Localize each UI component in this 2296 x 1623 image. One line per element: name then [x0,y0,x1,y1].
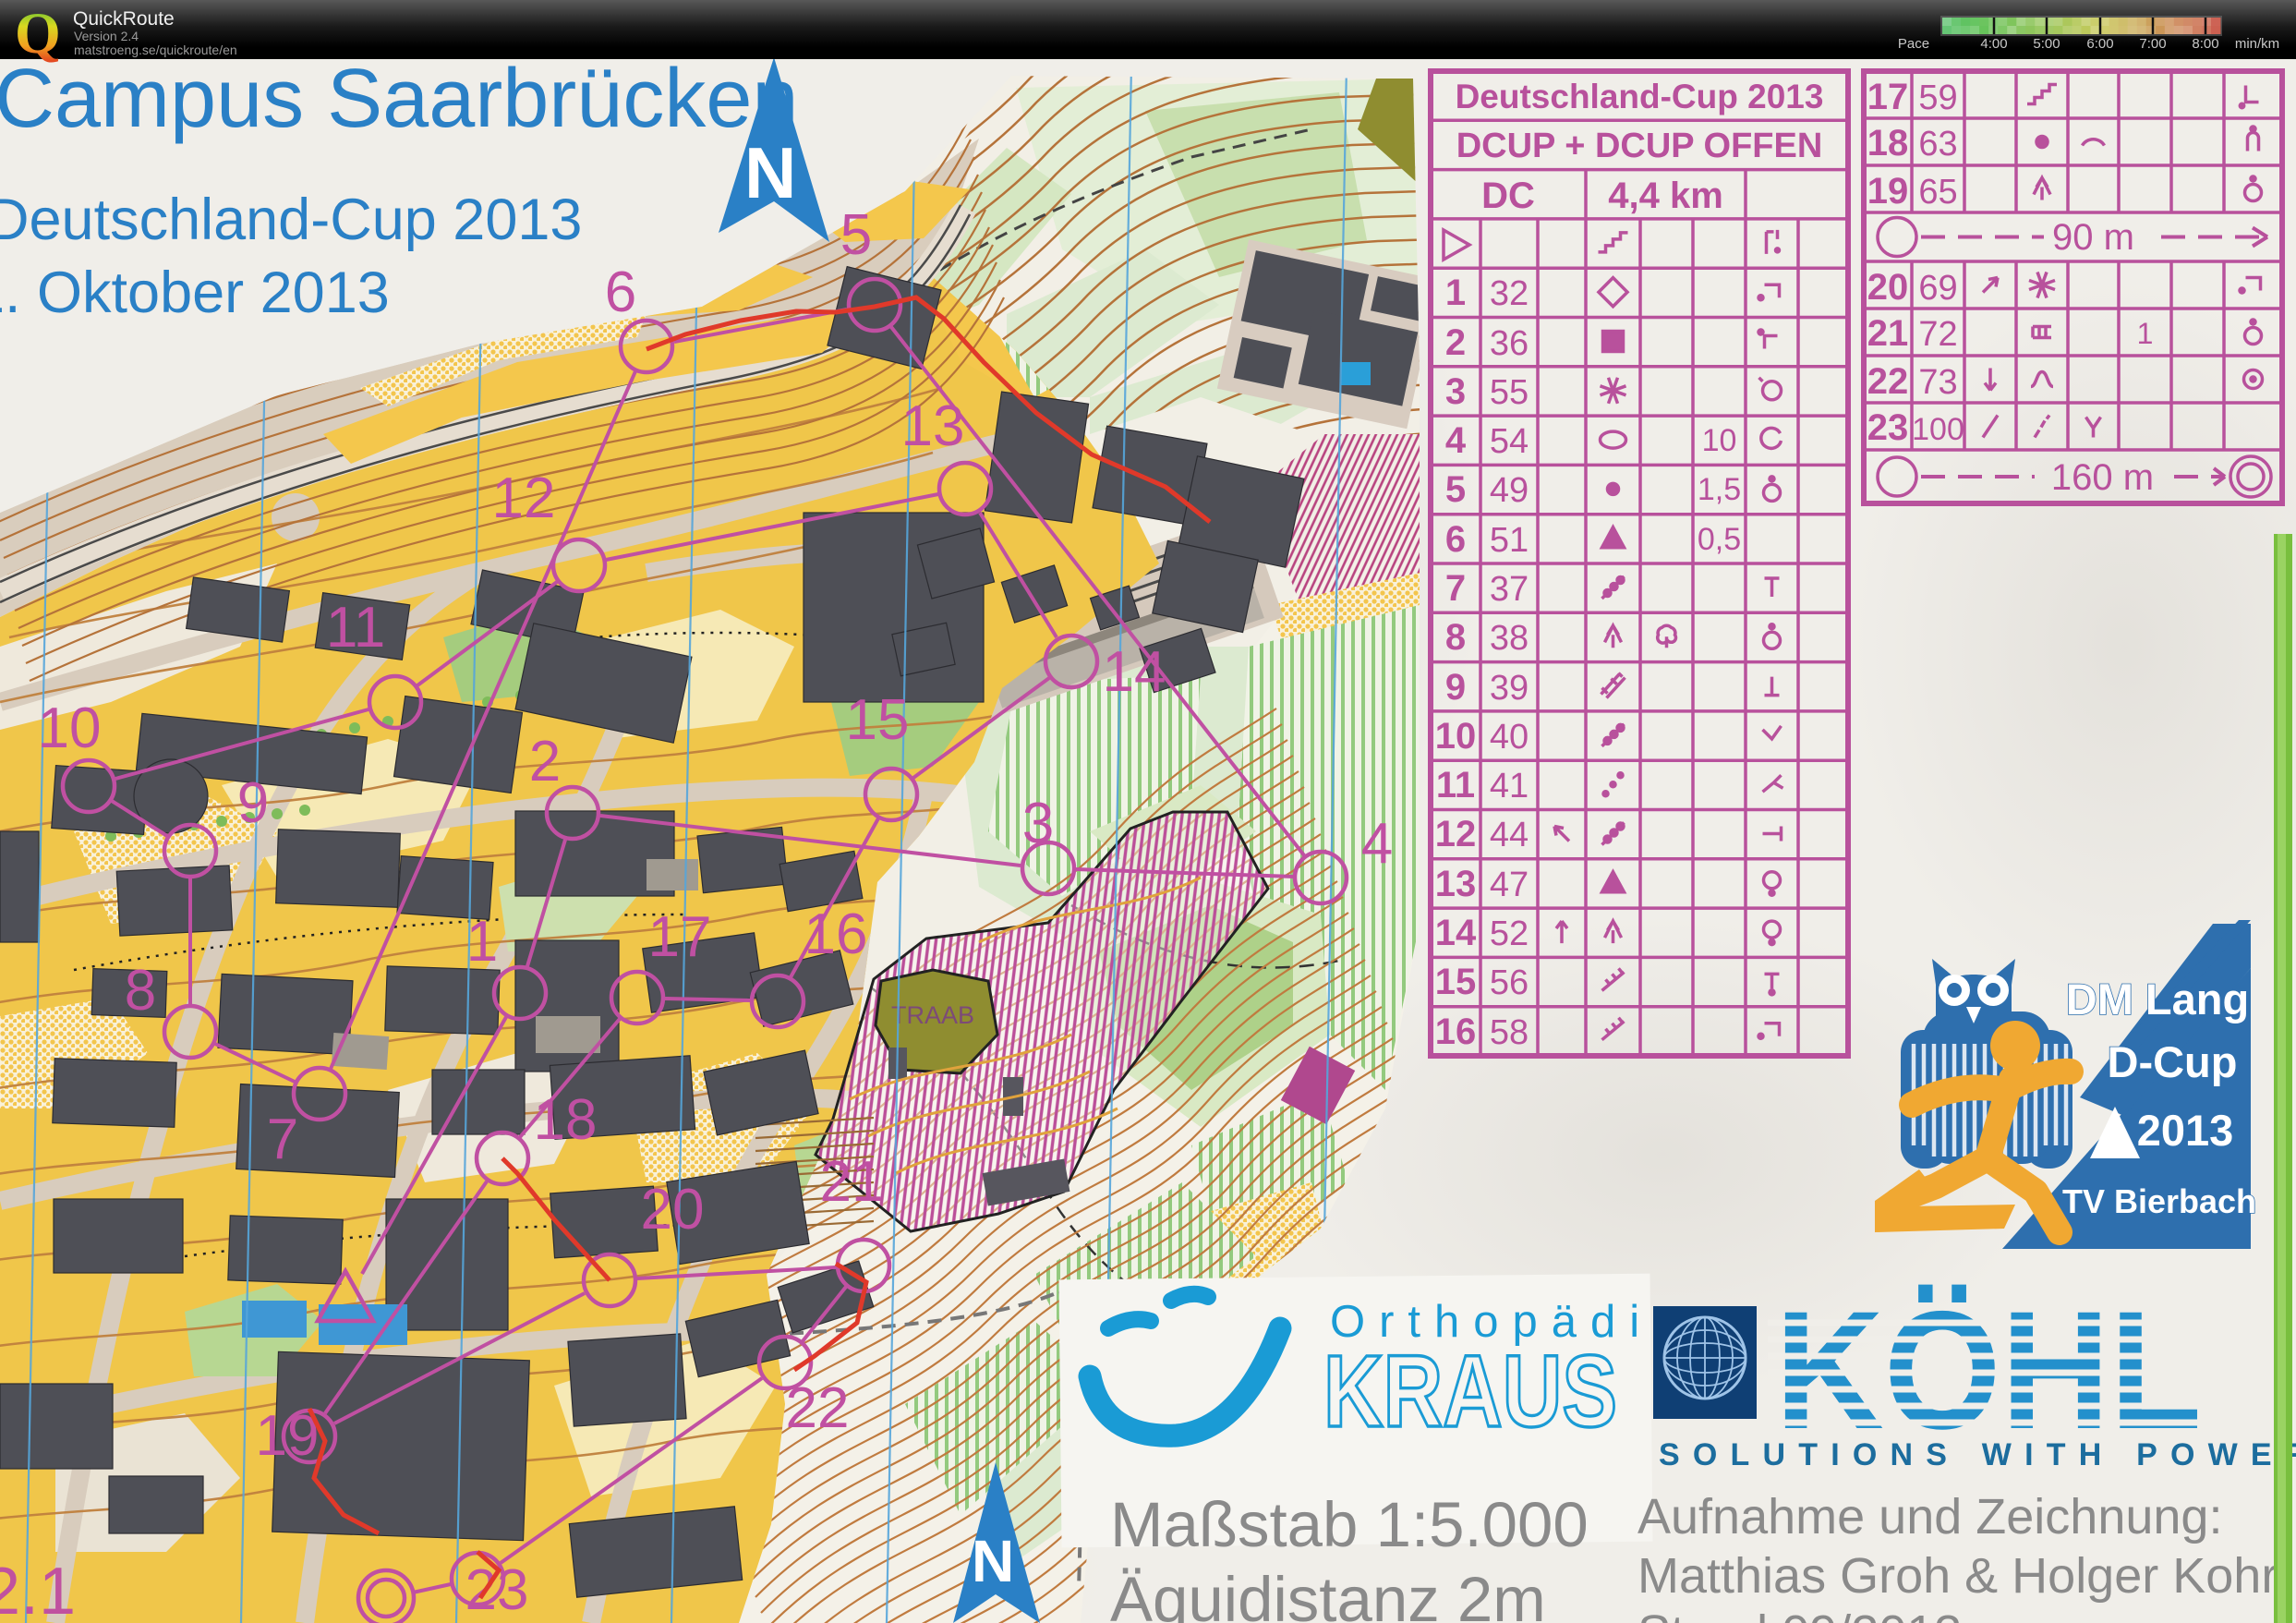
svg-text:17: 17 [648,905,712,969]
svg-text:37: 37 [1490,570,1529,609]
svg-text:12: 12 [492,466,556,530]
svg-text:5: 5 [1445,469,1466,510]
svg-text:N: N [744,132,796,213]
svg-text:6: 6 [605,260,636,324]
svg-text:KRAUS: KRAUS [1323,1335,1617,1448]
svg-text:3: 3 [1022,792,1054,855]
svg-text:39: 39 [1490,669,1529,708]
svg-text:15: 15 [1435,962,1477,1002]
svg-text:65: 65 [1918,173,1957,212]
svg-text:11: 11 [326,596,385,660]
svg-text:3: 3 [1445,371,1466,412]
svg-text:51: 51 [1490,521,1529,560]
svg-text:100: 100 [1912,412,1964,447]
svg-text:36: 36 [1490,324,1529,363]
svg-text:DC: DC [1481,176,1535,216]
svg-text:Äquidistanz 2m: Äquidistanz 2m [1110,1564,1546,1623]
svg-text:4: 4 [1361,812,1393,876]
svg-text:18: 18 [534,1088,598,1152]
svg-text:19: 19 [1867,171,1909,212]
svg-text:4: 4 [1445,420,1467,461]
svg-text:5:00: 5:00 [2033,36,2060,52]
svg-text:20: 20 [641,1178,705,1241]
svg-text:47: 47 [1490,866,1529,904]
svg-text:0,5: 0,5 [1698,522,1741,557]
svg-text:18: 18 [1867,123,1909,164]
svg-text:DM Lang: DM Lang [2066,975,2249,1023]
svg-text:6:00: 6:00 [2086,36,2113,52]
svg-text:1,5: 1,5 [1698,472,1741,507]
svg-text:14: 14 [1103,640,1166,704]
svg-text:Q: Q [15,0,61,66]
svg-text:58: 58 [1490,1013,1529,1052]
svg-text:Stand 09/2013: Stand 09/2013 [1637,1605,1962,1623]
svg-text:DCUP + DCUP OFFEN: DCUP + DCUP OFFEN [1456,127,1823,165]
svg-text:min/km: min/km [2235,36,2279,52]
svg-text:13: 13 [1435,864,1477,904]
svg-text:55: 55 [1490,373,1529,412]
svg-text:6: 6 [1445,519,1466,560]
svg-text:2013: 2013 [2137,1106,2234,1155]
svg-text:23: 23 [1867,407,1909,448]
svg-text:41: 41 [1490,767,1529,805]
svg-text:Deutschland-Cup 2013: Deutschland-Cup 2013 [0,188,582,252]
svg-text:11: 11 [1436,765,1475,805]
svg-text:1: 1 [466,910,498,974]
svg-text:44: 44 [1490,816,1529,854]
svg-text:22: 22 [786,1376,850,1440]
svg-text:56: 56 [1490,963,1529,1002]
svg-text:13: 13 [901,394,965,458]
svg-text:8: 8 [1445,617,1466,658]
svg-text:9: 9 [237,771,269,835]
svg-text:4,4 km: 4,4 km [1608,176,1723,216]
svg-text:8:00: 8:00 [2192,36,2218,52]
svg-text:Matthias Groh & Holger Kohr: Matthias Groh & Holger Kohr [1637,1548,2278,1604]
svg-text:4:00: 4:00 [1980,36,2007,52]
svg-text:2: 2 [1445,322,1466,363]
svg-text:20: 20 [1867,267,1909,308]
svg-text:14: 14 [1435,913,1477,953]
svg-text:7: 7 [267,1108,298,1171]
svg-text:Maßstab 1:5.000: Maßstab 1:5.000 [1110,1489,1589,1560]
svg-text:7: 7 [1445,568,1466,609]
svg-text:15: 15 [846,688,910,752]
svg-text:59: 59 [1918,79,1957,117]
svg-text:Campus Saarbrücken: Campus Saarbrücken [0,53,798,145]
svg-text:8: 8 [125,959,156,1023]
svg-text:40: 40 [1490,718,1529,757]
svg-text:54: 54 [1490,422,1529,461]
svg-text:52: 52 [1490,914,1529,953]
svg-text:38: 38 [1490,619,1529,658]
svg-text:16: 16 [804,902,868,966]
svg-text:10: 10 [1702,423,1737,458]
svg-text:5: 5 [840,203,872,267]
svg-text:69: 69 [1918,269,1957,308]
svg-text:12: 12 [1435,814,1477,854]
svg-text:21: 21 [820,1150,884,1214]
svg-text:Version 2.4: Version 2.4 [74,29,139,43]
svg-text:N: N [972,1528,1014,1594]
svg-text:Deutschland-Cup 2013: Deutschland-Cup 2013 [1456,78,1824,115]
svg-text:90 m: 90 m [2052,217,2134,258]
svg-text:TV Bierbach: TV Bierbach [2062,1182,2256,1220]
svg-text:32: 32 [1490,274,1529,313]
svg-text:49: 49 [1490,471,1529,510]
svg-text:73: 73 [1918,363,1957,402]
svg-text:160 m: 160 m [2051,457,2154,498]
svg-text:7:00: 7:00 [2139,36,2166,52]
svg-text:SOLUTIONS WITH POWER: SOLUTIONS WITH POWER [1659,1437,2296,1472]
svg-text:2: 2 [529,730,561,793]
svg-text:22: 22 [1867,361,1909,402]
svg-text:1. Oktober 2013: 1. Oktober 2013 [0,260,390,325]
svg-text:72: 72 [1918,315,1957,354]
svg-text:17: 17 [1867,77,1909,117]
svg-text:QuickRoute: QuickRoute [73,8,175,30]
svg-text:matstroeng.se/quickroute/en: matstroeng.se/quickroute/en [74,42,237,57]
svg-text:21: 21 [1867,313,1909,354]
svg-text:TRAAB: TRAAB [891,1001,974,1029]
svg-text:9: 9 [1445,667,1466,708]
svg-text:16: 16 [1435,1011,1477,1052]
svg-text:1: 1 [2137,317,2154,350]
svg-text:Aufnahme und Zeichnung:: Aufnahme und Zeichnung: [1637,1489,2222,1544]
svg-text:10: 10 [1435,716,1477,757]
svg-text:2.1: 2.1 [0,1555,76,1623]
svg-text:D-Cup: D-Cup [2108,1037,2238,1086]
svg-text:1: 1 [1445,273,1466,313]
svg-text:63: 63 [1918,125,1957,164]
svg-text:Pace: Pace [1898,36,1929,52]
svg-text:10: 10 [38,696,102,760]
